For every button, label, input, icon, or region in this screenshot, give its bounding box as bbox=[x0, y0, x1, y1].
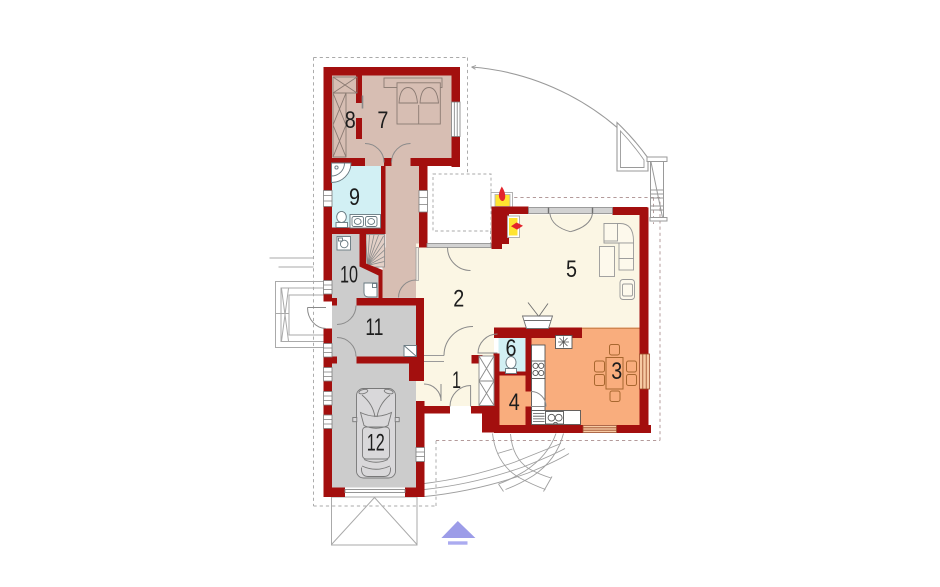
svg-text:12: 12 bbox=[367, 430, 385, 457]
svg-text:7: 7 bbox=[377, 107, 388, 134]
svg-text:5: 5 bbox=[566, 256, 577, 283]
svg-text:11: 11 bbox=[365, 314, 383, 341]
svg-text:2: 2 bbox=[453, 286, 464, 313]
svg-text:4: 4 bbox=[509, 389, 520, 416]
svg-text:10: 10 bbox=[340, 262, 358, 289]
svg-text:8: 8 bbox=[345, 107, 356, 134]
svg-text:3: 3 bbox=[611, 358, 622, 385]
svg-text:6: 6 bbox=[506, 335, 517, 362]
svg-text:9: 9 bbox=[349, 184, 360, 211]
svg-text:1: 1 bbox=[452, 367, 461, 394]
